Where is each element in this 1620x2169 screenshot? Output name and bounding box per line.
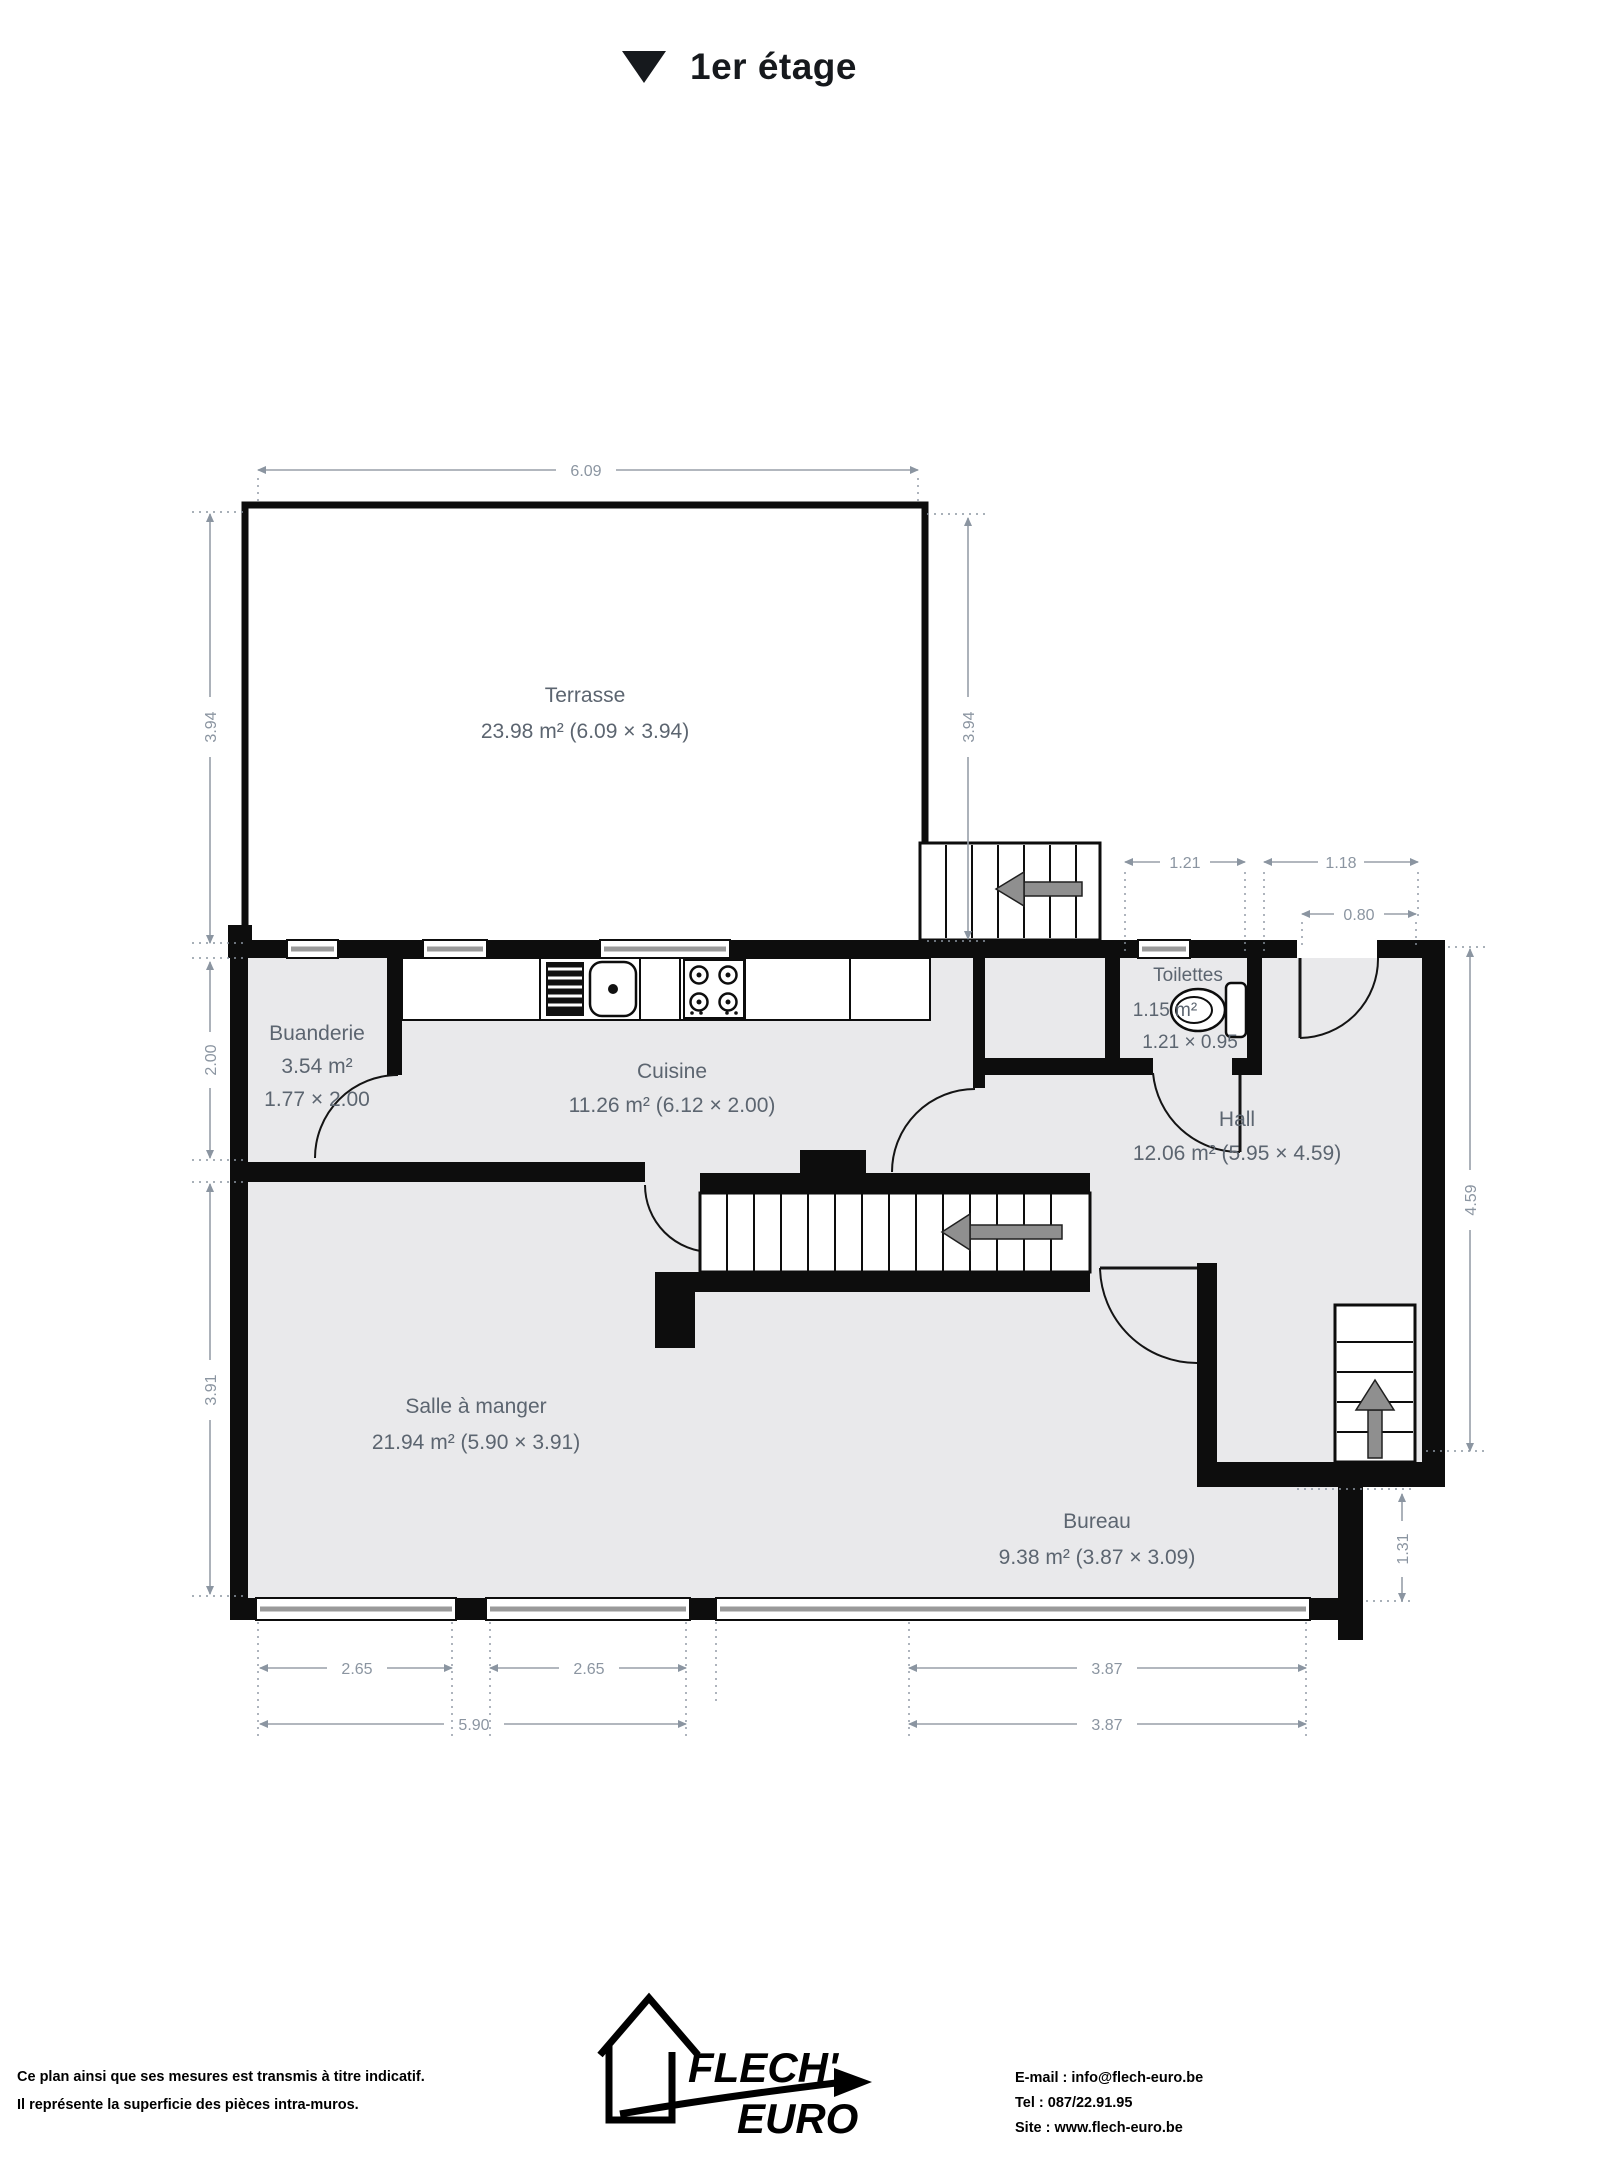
sink-icon bbox=[546, 962, 636, 1016]
dim-label: 5.90 bbox=[458, 1717, 489, 1734]
dim-label: 2.00 bbox=[203, 1044, 220, 1075]
dimension-entrance-width: 1.18 bbox=[1264, 855, 1418, 952]
dimension-extension-lines-bottom bbox=[258, 1622, 1306, 1740]
dimension-terrasse-width: 6.09 bbox=[258, 463, 918, 506]
dim-label: 1.21 bbox=[1169, 855, 1200, 872]
logo-text-line1: FLECH' bbox=[688, 2044, 840, 2091]
dim-label: 3.87 bbox=[1091, 1661, 1122, 1678]
dimension-bureau-width-top: 3.87 bbox=[909, 1661, 1306, 1678]
flech-euro-logo: FLECH' EURO bbox=[600, 1998, 872, 2142]
dimension-window-left-2: 2.65 bbox=[490, 1661, 686, 1678]
room-area: 1.15 m² bbox=[1133, 1000, 1197, 1021]
logo-text-line2: EURO bbox=[737, 2095, 858, 2142]
dim-label: 3.87 bbox=[1091, 1717, 1122, 1734]
window bbox=[1138, 940, 1190, 958]
plan-disclaimer: Ce plan ainsi que ses mesures est transm… bbox=[17, 2063, 425, 2119]
dim-label: 3.94 bbox=[203, 711, 220, 742]
dimension-window-left-1: 2.65 bbox=[260, 1661, 452, 1678]
window bbox=[256, 1598, 456, 1620]
dim-label: 1.18 bbox=[1325, 855, 1356, 872]
exterior-stairs bbox=[920, 843, 1100, 940]
logo-house-icon bbox=[600, 1998, 698, 2055]
floor-plan-drawing: Terrasse 23.98 m² (6.09 × 3.94) Buanderi… bbox=[0, 0, 1620, 2169]
room-name: Salle à manger bbox=[405, 1395, 546, 1418]
dimension-terrasse-height-left: 3.94 bbox=[192, 512, 246, 943]
disclaimer-line-1: Ce plan ainsi que ses mesures est transm… bbox=[17, 2063, 425, 2091]
floor-plan-page: 1er étage bbox=[0, 0, 1620, 2169]
room-size: 1.77 × 2.00 bbox=[264, 1088, 370, 1111]
dim-label: 6.09 bbox=[570, 463, 601, 480]
contact-block: E-mail : info@flech-euro.be Tel : 087/22… bbox=[1015, 2066, 1203, 2141]
dim-label: 0.80 bbox=[1343, 907, 1374, 924]
window bbox=[716, 1598, 1310, 1620]
room-size: 1.21 × 0.95 bbox=[1142, 1032, 1238, 1053]
room-name: Hall bbox=[1219, 1108, 1255, 1131]
dimension-toilettes-width: 1.21 bbox=[1125, 855, 1245, 952]
room-name: Terrasse bbox=[545, 684, 626, 707]
contact-site: Site : www.flech-euro.be bbox=[1015, 2116, 1203, 2141]
dim-label: 4.59 bbox=[1463, 1184, 1480, 1215]
interior-stairs-upper bbox=[700, 1193, 1090, 1272]
contact-email: E-mail : info@flech-euro.be bbox=[1015, 2066, 1203, 2091]
dim-label: 3.94 bbox=[961, 711, 978, 742]
logo-arrow-icon bbox=[834, 2068, 872, 2097]
dimension-bureau-width-bottom: 3.87 bbox=[909, 1717, 1306, 1734]
room-name: Toilettes bbox=[1153, 965, 1223, 986]
interior-stairs-lower bbox=[1335, 1305, 1415, 1462]
dim-label: 2.65 bbox=[341, 1661, 372, 1678]
room-name: Cuisine bbox=[637, 1060, 707, 1083]
room-name: Buanderie bbox=[269, 1022, 365, 1045]
disclaimer-line-2: Il représente la superficie des pièces i… bbox=[17, 2091, 425, 2119]
room-area: 3.54 m² bbox=[281, 1055, 352, 1078]
window bbox=[423, 940, 487, 958]
window bbox=[600, 940, 730, 958]
kitchen-counter bbox=[402, 958, 930, 1020]
contact-tel: Tel : 087/22.91.95 bbox=[1015, 2091, 1203, 2116]
window bbox=[287, 940, 338, 958]
dim-label: 3.91 bbox=[203, 1374, 220, 1405]
dim-label: 2.65 bbox=[573, 1661, 604, 1678]
window bbox=[486, 1598, 690, 1620]
room-area: 21.94 m² (5.90 × 3.91) bbox=[372, 1431, 580, 1454]
room-area: 12.06 m² (5.95 × 4.59) bbox=[1133, 1142, 1341, 1165]
room-name: Bureau bbox=[1063, 1510, 1131, 1533]
room-area: 11.26 m² (6.12 × 2.00) bbox=[569, 1094, 776, 1117]
stove-icon bbox=[684, 960, 744, 1018]
dim-label: 1.31 bbox=[1395, 1533, 1412, 1564]
room-area: 9.38 m² (3.87 × 3.09) bbox=[999, 1546, 1196, 1569]
room-area: 23.98 m² (6.09 × 3.94) bbox=[481, 720, 689, 743]
dimension-salle-width: 5.90 bbox=[260, 1717, 686, 1734]
